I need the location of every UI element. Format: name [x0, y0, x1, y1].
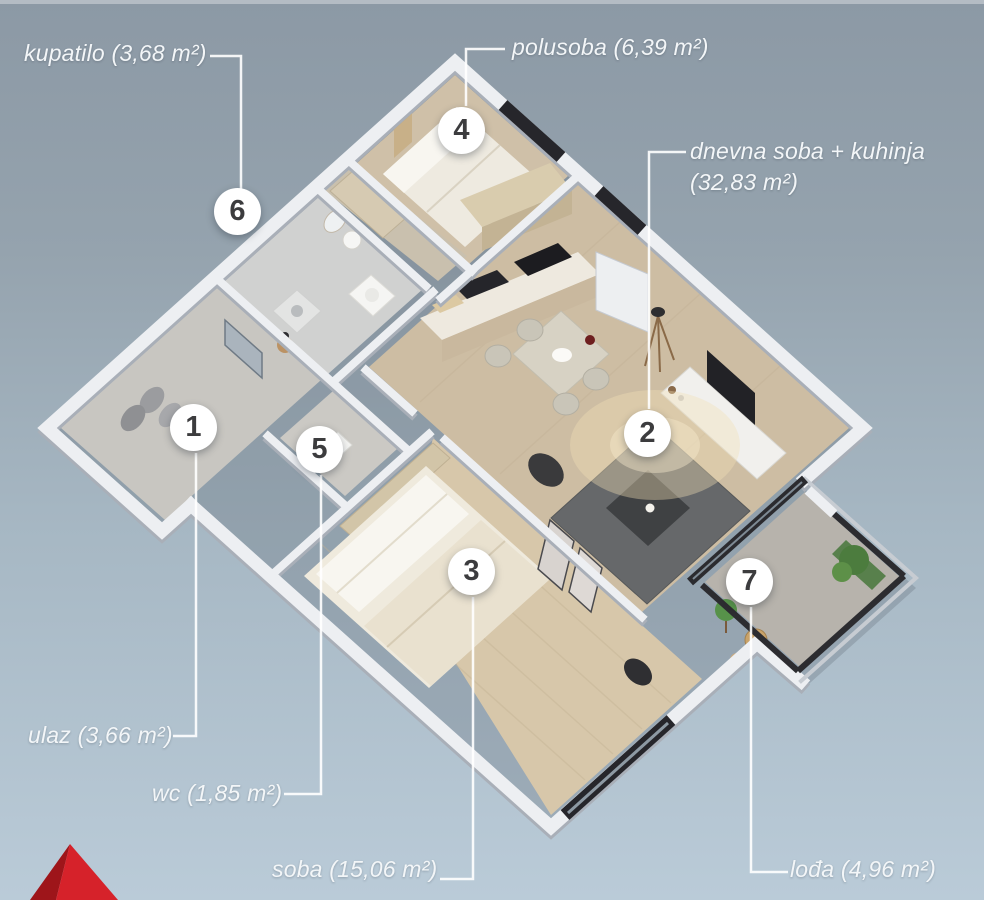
room-label-soba: soba (15,06 m²)	[272, 856, 437, 883]
table-decor	[585, 335, 595, 345]
room-label-dnevna-soba: dnevna soba + kuhinja (32,83 m²)	[690, 136, 942, 198]
dining-chair	[553, 393, 579, 415]
room-marker-3-soba: 3	[448, 548, 495, 595]
room-marker-6-kupatilo: 6	[214, 188, 261, 235]
room-marker-4-polusoba: 4	[438, 107, 485, 154]
room-label-polusoba: polusoba (6,39 m²)	[512, 34, 709, 61]
floor-plan-render	[0, 0, 984, 900]
leader-line-kupatilo	[210, 56, 241, 189]
room-marker-2-dnevna-soba: 2	[624, 410, 671, 457]
red-pyramid-logo	[30, 844, 118, 900]
room-marker-1-ulaz: 1	[170, 404, 217, 451]
floor-plan-scene: kupatilo (3,68 m²) polusoba (6,39 m²) dn…	[0, 0, 984, 900]
room-marker-5-wc: 5	[296, 426, 343, 473]
room-label-wc: wc (1,85 m²)	[152, 780, 282, 807]
room-label-lodja: lođa (4,96 m²)	[790, 856, 936, 883]
room-label-kupatilo: kupatilo (3,68 m²)	[24, 40, 207, 67]
dining-chair	[517, 319, 543, 341]
room-marker-7-lodja: 7	[726, 558, 773, 605]
dining-chair	[485, 345, 511, 367]
dining-chair	[583, 368, 609, 390]
room-label-ulaz: ulaz (3,66 m²)	[28, 722, 173, 749]
